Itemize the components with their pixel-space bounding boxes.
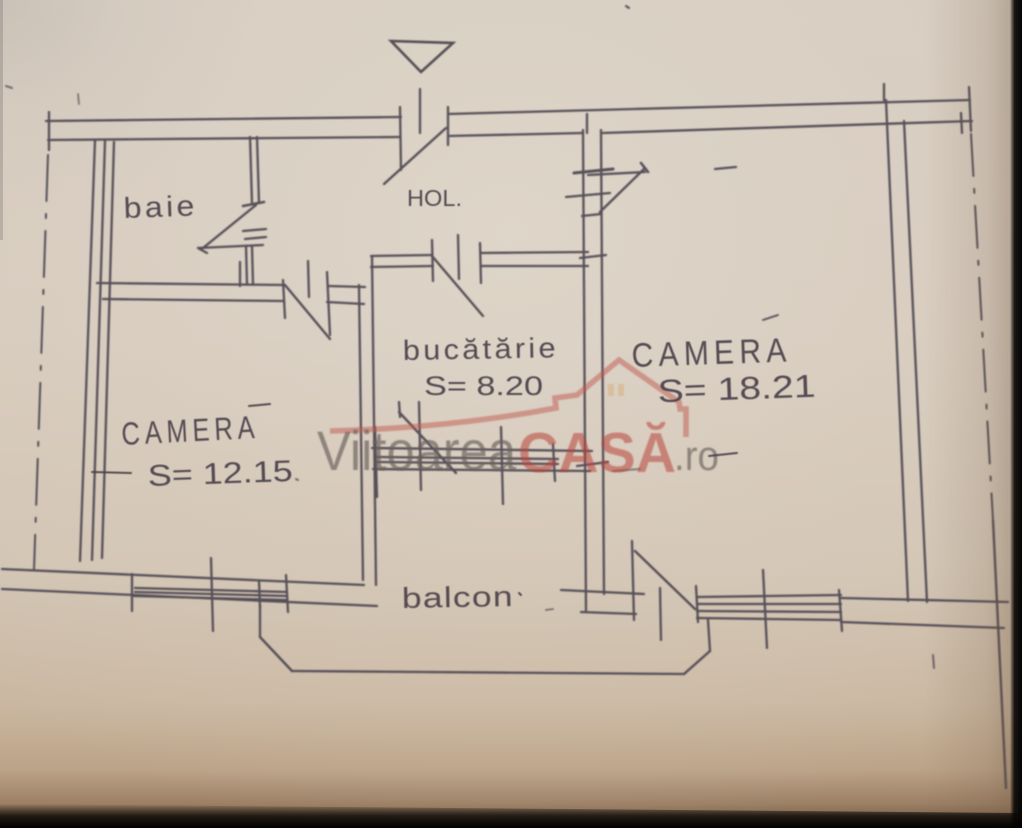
svg-text:baie: baie <box>123 190 198 225</box>
svg-text:S= 12.15: S= 12.15 <box>147 455 293 493</box>
svg-text:S= 8.20: S= 8.20 <box>424 371 543 401</box>
svg-text:CASĂ: CASĂ <box>518 421 676 485</box>
svg-text:balcon: balcon <box>402 581 515 615</box>
svg-text:Viitoarea: Viitoarea <box>317 419 517 482</box>
svg-text:bucătărie: bucătărie <box>403 332 560 366</box>
svg-text:S= 18.21: S= 18.21 <box>657 368 816 409</box>
svg-text:HOL.: HOL. <box>407 185 462 211</box>
svg-text:CAMERA: CAMERA <box>120 409 260 452</box>
